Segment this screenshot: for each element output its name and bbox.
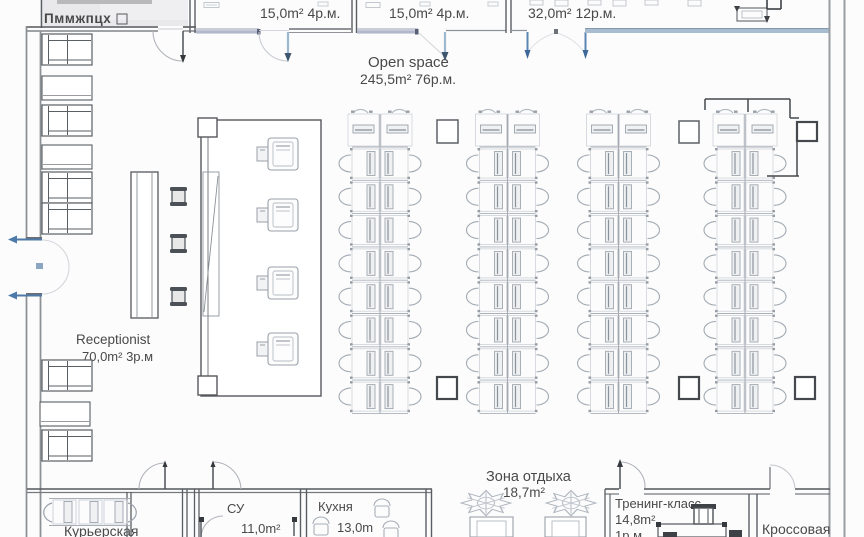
svg-text:15,0m² 4р.м.: 15,0m² 4р.м. [260,5,340,21]
svg-text:70,0m² 3р.м: 70,0m² 3р.м [82,349,153,364]
svg-text:СУ: СУ [227,501,245,516]
svg-text:Тренинг-класс: Тренинг-класс [615,496,702,511]
svg-text:Кухня: Кухня [318,499,353,514]
svg-text:13,0m: 13,0m [337,520,373,535]
svg-text:245,5m² 76р.м.: 245,5m² 76р.м. [360,71,456,87]
svg-text:Кроссовая: Кроссовая [762,521,830,537]
svg-text:Receptionist: Receptionist [76,332,151,347]
svg-text:14,8m²: 14,8m² [615,512,656,527]
svg-text:32,0m² 12р.м.: 32,0m² 12р.м. [528,5,616,21]
svg-text:15,0m² 4р.м.: 15,0m² 4р.м. [389,5,469,21]
svg-text:1р.м: 1р.м [615,528,642,537]
svg-text:18,7m²: 18,7m² [503,485,546,500]
svg-text:Open space: Open space [368,54,449,71]
svg-text:Зона отдыха: Зона отдыха [486,469,572,485]
svg-text:11,0m²: 11,0m² [241,521,281,536]
svg-text:Пммжпцх: Пммжпцх [44,11,111,26]
